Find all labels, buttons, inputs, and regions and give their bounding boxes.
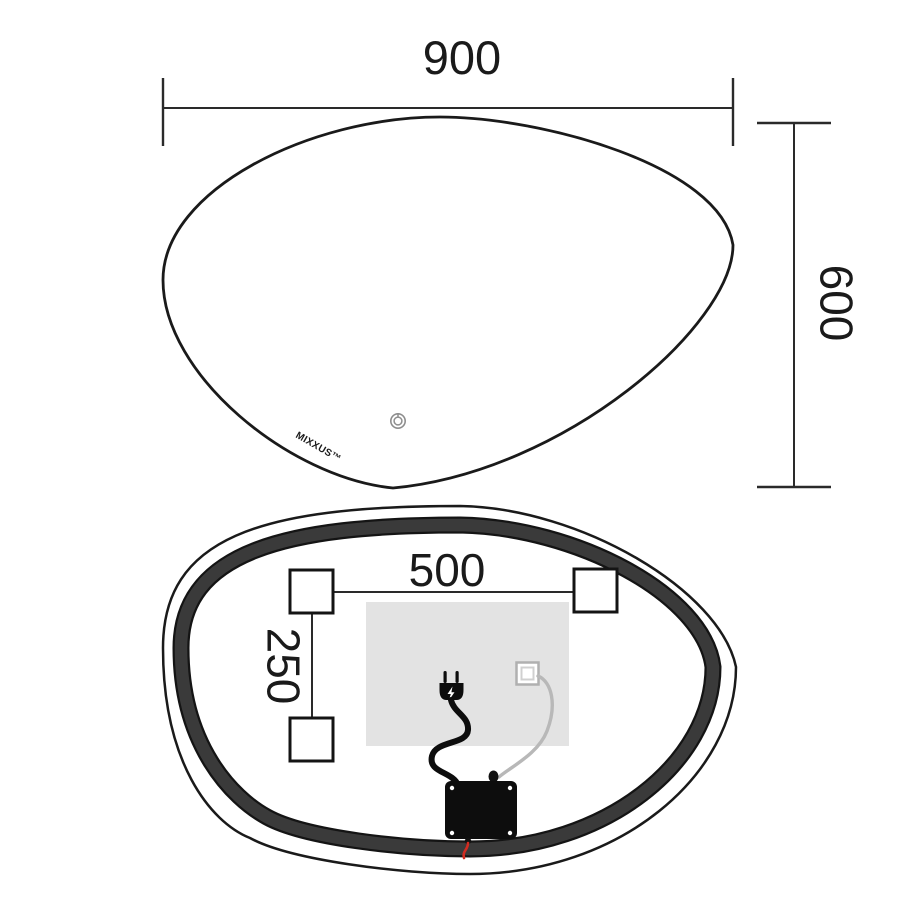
driver-screw — [508, 786, 512, 790]
mounting-bracket-top-right — [574, 569, 617, 612]
front-view: MIXXUS™ — [163, 117, 733, 488]
plug-prong-left — [444, 671, 447, 683]
cable-gland — [489, 771, 499, 783]
dim-label-height: 600 — [810, 265, 862, 342]
dim-label-mount-height: 250 — [257, 628, 309, 705]
mirror-front-outline — [163, 117, 733, 488]
technical-drawing: MIXXUS™ 900 600 500 250 — [0, 0, 900, 900]
dim-label-mount-width: 500 — [409, 544, 486, 596]
driver-screw — [508, 831, 512, 835]
plug-prong-right — [456, 671, 459, 683]
driver-screw — [450, 831, 454, 835]
mounting-bracket-bottom-left — [290, 718, 333, 761]
driver-screw — [450, 786, 454, 790]
mounting-bracket-top-left — [290, 570, 333, 613]
driver-box — [445, 781, 517, 839]
sensor-connector — [517, 663, 539, 685]
dim-label-width: 900 — [423, 31, 501, 84]
rear-view: 500 250 — [163, 506, 736, 874]
mirror-dimension-diagram: MIXXUS™ 900 600 500 250 — [0, 0, 900, 900]
